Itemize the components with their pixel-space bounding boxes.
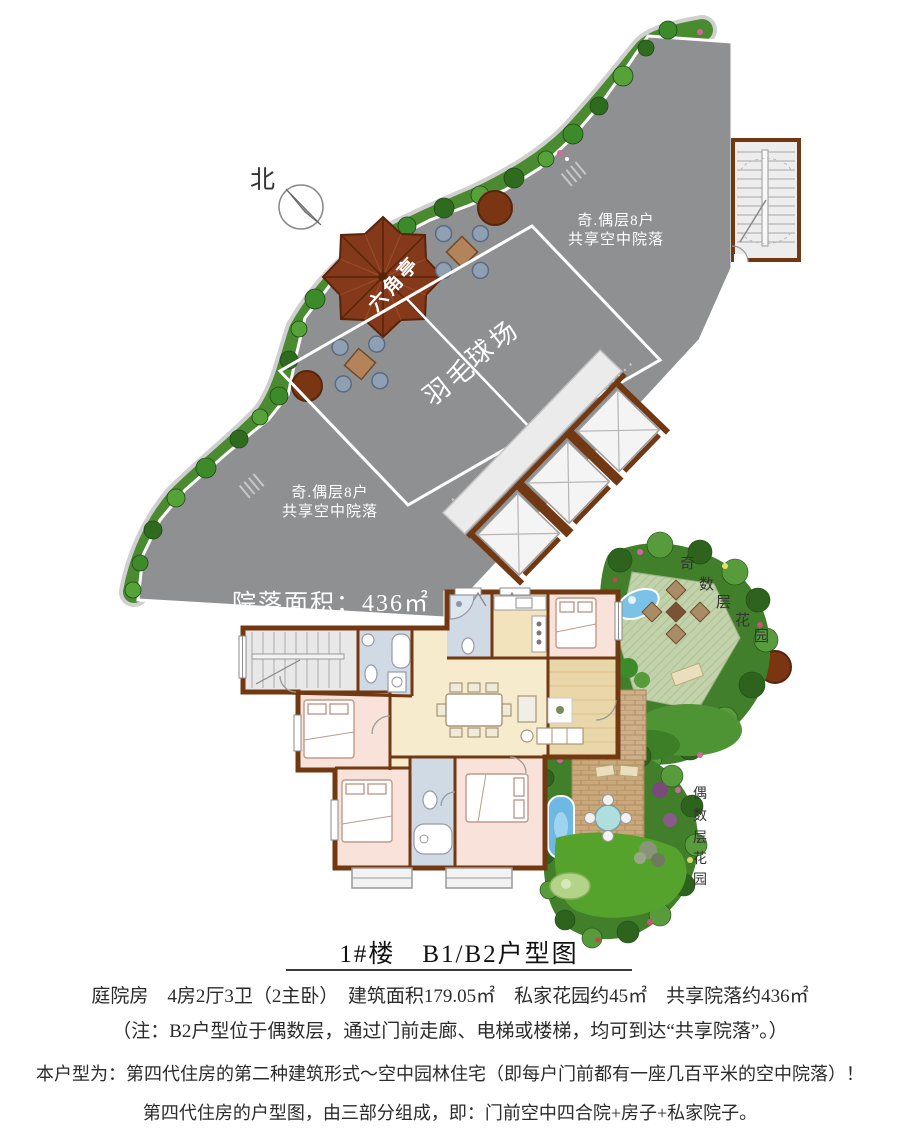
note-line-2: 共享空中院落 (568, 231, 664, 250)
even-garden-char: 园 (693, 869, 707, 889)
shared-courtyard-note-top: 奇.偶层8户 共享空中院落 (568, 212, 664, 250)
odd-garden-char: 园 (754, 625, 769, 646)
odd-garden-char: 数 (699, 573, 714, 594)
floor-plan-svg (0, 0, 900, 1145)
room-stairs (243, 628, 358, 692)
odd-garden-char: 层 (716, 591, 731, 612)
note-line: （注：B2户型位于偶数层，通过门前走廊、电梯或楼梯，均可到达“共享院落”。） (0, 1016, 900, 1043)
north-label: 北 (250, 160, 275, 196)
description-line-2: 第四代住房的户型图，由三部分组成，即：门前空中四合院+房子+私家院子。 (0, 1099, 900, 1125)
note-line-2: 共享空中院落 (282, 503, 378, 522)
note-line-1: 奇.偶层8户 (568, 212, 664, 231)
note-line-1: 奇.偶层8户 (282, 484, 378, 503)
description-line-1: 本户型为：第四代住房的第二种建筑形式～空中园林住宅（即每户门前都有一座几百平米的… (0, 1060, 900, 1086)
garden-table (595, 805, 621, 831)
plan-title: 1#楼 B1/B2户型图 (285, 934, 633, 970)
entry-terrace (618, 658, 650, 760)
even-garden-char: 层 (693, 827, 707, 847)
stairwell-top-right (732, 140, 799, 262)
title-underline (286, 969, 632, 971)
odd-garden-char: 花 (735, 609, 750, 630)
compass (279, 185, 323, 229)
balconies (352, 868, 512, 888)
spec-line: 庭院房 4房2厅3卫（2主卧） 建筑面积179.05㎡ 私家花园约45㎡ 共享院… (0, 981, 900, 1008)
even-garden-char: 花 (693, 848, 707, 868)
floor-plan-page: 北 奇.偶层8户 共享空中院落 奇.偶层8户 共享空中院落 院落面积：436㎡ … (0, 0, 900, 1145)
shared-courtyard-note-bottom: 奇.偶层8户 共享空中院落 (282, 484, 378, 522)
odd-garden-char: 奇 (680, 552, 695, 573)
courtyard-area-label: 院落面积：436㎡ (232, 583, 430, 618)
even-floor-garden (535, 733, 707, 948)
even-garden-char: 偶 (693, 783, 707, 803)
even-garden-char: 数 (693, 805, 707, 825)
